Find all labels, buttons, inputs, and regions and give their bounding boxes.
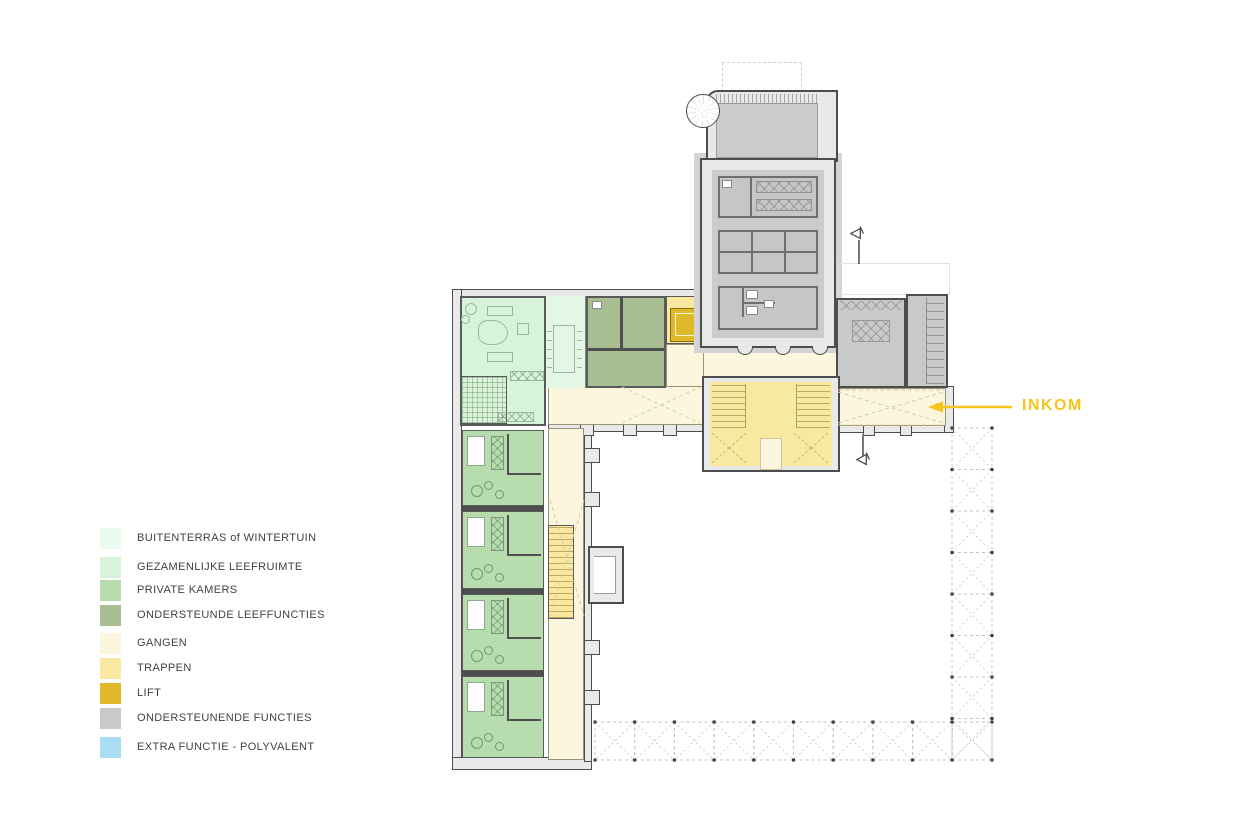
legend-swatch xyxy=(100,708,121,729)
legend-label: LIFT xyxy=(137,687,161,699)
legend-item: TRAPPEN xyxy=(100,658,360,679)
legend-swatch xyxy=(100,528,121,549)
legend-label: GANGEN xyxy=(137,637,187,649)
legend-label: BUITENTERRAS of WINTERTUIN xyxy=(137,532,317,544)
legend-label: GEZAMENLIJKE LEEFRUIMTE xyxy=(137,561,303,573)
legend-swatch xyxy=(100,633,121,654)
inkom-arrow xyxy=(928,399,1014,415)
legend-item: LIFT xyxy=(100,683,360,704)
legend-item: GANGEN xyxy=(100,633,360,654)
legend-label: PRIVATE KAMERS xyxy=(137,584,238,596)
legend-swatch xyxy=(100,605,121,626)
legend-label: TRAPPEN xyxy=(137,662,192,674)
legend-label: ONDERSTEUNENDE FUNCTIES xyxy=(137,712,312,724)
legend-swatch xyxy=(100,557,121,578)
legend-swatch xyxy=(100,683,121,704)
legend-item: ONDERSTEUNDE LEEFFUNCTIES xyxy=(100,605,360,626)
legend-item: EXTRA FUNCTIE - POLYVALENT xyxy=(100,737,360,758)
legend-item: PRIVATE KAMERS xyxy=(100,580,360,601)
legend-swatch xyxy=(100,658,121,679)
legend-item: ONDERSTEUNENDE FUNCTIES xyxy=(100,708,360,729)
legend-item: GEZAMENLIJKE LEEFRUIMTE xyxy=(100,557,360,578)
legend-swatch xyxy=(100,737,121,758)
legend-item: BUITENTERRAS of WINTERTUIN xyxy=(100,528,360,549)
inkom-label: INKOM xyxy=(1022,397,1083,415)
legend-swatch xyxy=(100,580,121,601)
legend: BUITENTERRAS of WINTERTUIN GEZAMENLIJKE … xyxy=(100,528,360,768)
legend-label: ONDERSTEUNDE LEEFFUNCTIES xyxy=(137,609,325,621)
legend-label: EXTRA FUNCTIE - POLYVALENT xyxy=(137,741,314,753)
